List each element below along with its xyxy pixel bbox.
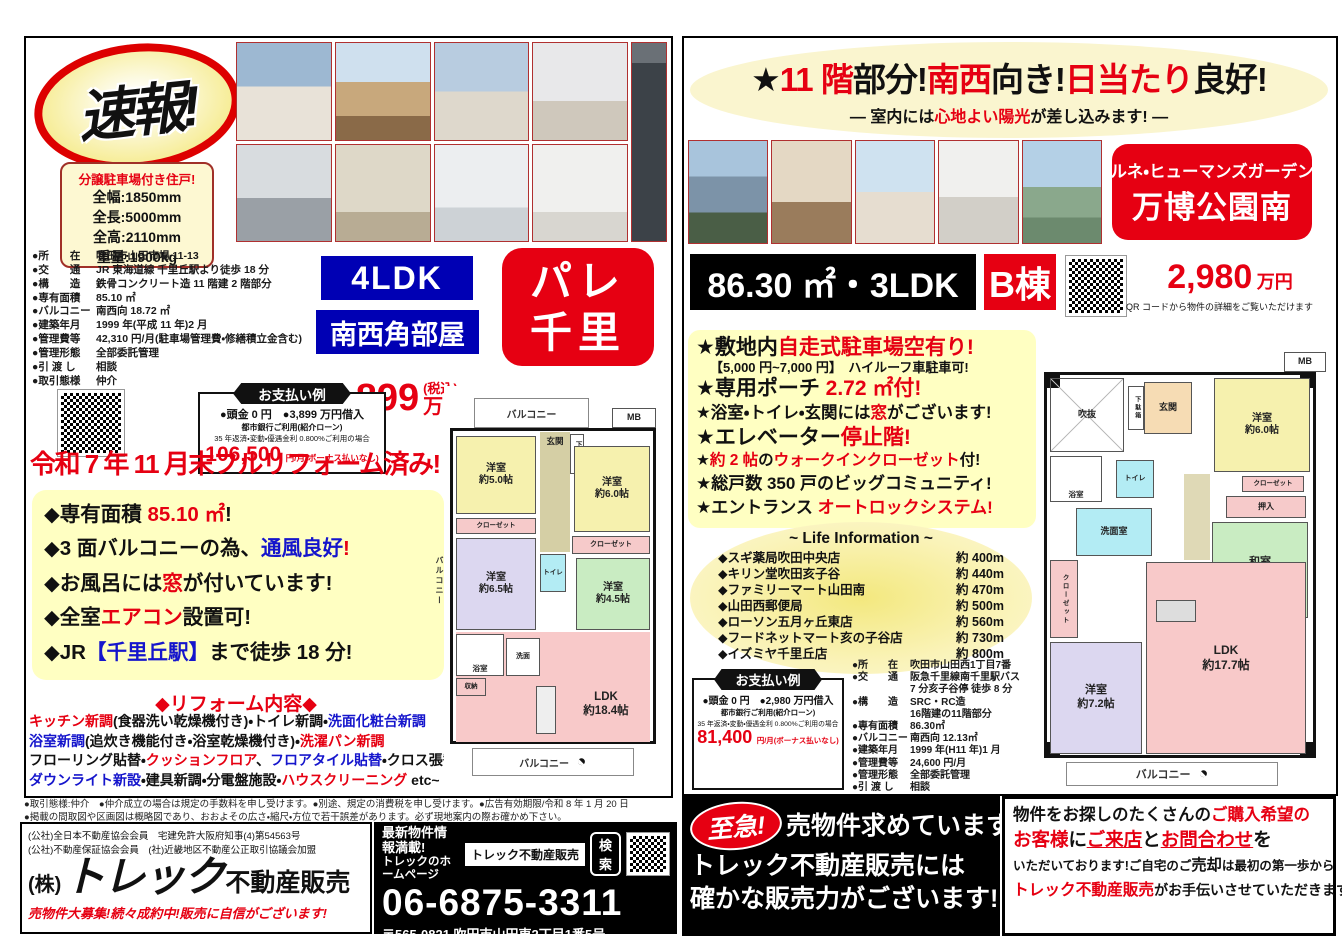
payment-title: お支払い例	[714, 669, 822, 690]
property-photo	[335, 144, 431, 243]
meter-box-label: MB	[612, 408, 656, 428]
qr-caption: QR コードから物件の詳細をご覧いただけます	[1126, 300, 1330, 313]
floor-plan: MB 吹抜 下駄箱 玄関 洋室 約6.0帖 浴室 トイレ 洗面室 クローゼット …	[1036, 350, 1332, 790]
urgent-recruiting-box: 至急! 売物件求めています! トレック不動産販売には 確かな販売力がございます!	[682, 796, 1000, 936]
life-item: ◆スギ薬局吹田中央店約 400m	[718, 550, 1004, 566]
life-item: ◆フードネットマート亥の子谷店約 730m	[718, 630, 1004, 646]
property-photo	[236, 144, 332, 243]
website-promo-line: トレックのホームページ	[382, 856, 459, 882]
urgent-badge: 至急!	[688, 798, 784, 854]
feature-item: ◆お風呂には窓が付いています!	[44, 567, 432, 601]
selling-point: ★敷地内自走式駐車場空有り!	[696, 335, 1028, 360]
selling-point: ★総戸数 350 戸のビッグコミュニティ!	[696, 472, 1028, 496]
bedroom-6-0: 洋室 約6.0帖	[574, 446, 650, 532]
property-photo	[532, 42, 628, 141]
photo-grid	[236, 42, 667, 242]
property-details-list: ●所 在吹田市山田市場 11-13 ●交 通JR 東海道線 千里丘駅より徒歩 1…	[32, 250, 338, 389]
features-box: ◆専有面積 85.10 ㎡! ◆3 面バルコニーの為、通風良好! ◆お風呂には窓…	[32, 490, 444, 680]
hallway	[1184, 474, 1210, 560]
shoe-cabinet: 下駄箱	[1128, 386, 1144, 430]
balcony-label: バルコニー ◑	[1066, 762, 1278, 786]
headline-title: ★11 階部分!南西向き!日当たり良好!	[751, 53, 1267, 101]
ldk: LDK 約17.7帖	[1146, 562, 1306, 754]
detail-row: ●構 造鉄骨コンクリート造 11 階建 2 階部分	[32, 278, 338, 292]
life-item: ◆山田西郵便局約 500m	[718, 598, 1004, 614]
left-listing-page: 速報! 分譲駐車場付き住戸! 全幅:1850mm 全長:5000mm 全高:21…	[24, 36, 673, 798]
parking-width: 全幅:1850mm	[62, 188, 212, 208]
corner-room-badge: 南西角部屋	[316, 310, 479, 354]
sales-promo-box: 物件をお探しのたくさんのご購入希望の お客様にご来店とお問合わせを いただいてお…	[1002, 796, 1336, 936]
area-layout-badge: 86.30 ㎡・3LDK	[690, 254, 976, 310]
property-photo	[532, 144, 628, 243]
detail-row: ●専有面積85.10 ㎡	[32, 292, 338, 306]
price: 2,980 万円	[1132, 258, 1328, 297]
headline-banner: ★11 階部分!南西向き!日当たり良好! ― 室内には心地よい陽光が差し込みます…	[690, 42, 1328, 138]
bedroom-5-0: 洋室 約5.0帖	[456, 436, 536, 514]
selling-point: ★約 2 帖のウォークインクローゼット付!	[696, 450, 1028, 472]
qr-code	[627, 833, 669, 875]
payment-example-box: お支払い例 ●頭金 0 円 ●2,980 万円借入 都市銀行ご利用(紹介ローン)…	[692, 678, 844, 790]
license-line: (公社)全日本不動産協会会員 宅建免許大阪府知事(4)第54563号	[28, 828, 364, 842]
detail-row: ●引 渡 し相談	[32, 361, 338, 375]
phone-number: 06-6875-3311	[382, 883, 669, 924]
floor-plan: バルコニー MB 玄関 下駄箱 洋室 約5.0帖 洋室 約6.0帖 クローゼット…	[444, 386, 666, 790]
selling-points-box: ★敷地内自走式駐車場空有り! 【5,000 円~7,000 円】 ハイルーフ車駐…	[688, 330, 1036, 528]
balcony-label: バルコニー	[474, 398, 589, 428]
detail-row: ●建築年月1999 年(平成 11 年)2 月	[32, 319, 338, 333]
price-amount: 2,980	[1167, 258, 1252, 296]
life-item: ◆ファミリーマート山田南約 470m	[718, 582, 1004, 598]
compass-icon: ◑	[572, 752, 592, 772]
washroom: 洗面	[506, 638, 540, 676]
renovation-headline: 令和 7 年 11 月末フルリフォーム済み!	[30, 444, 468, 481]
life-item: ◆ローソン五月ヶ丘東店約 560m	[718, 614, 1004, 630]
bedroom-6-0: 洋室 約6.0帖	[1214, 378, 1310, 472]
bedroom-4-5: 洋室 約4.5帖	[576, 558, 650, 630]
promo-line: いただいております!ご自宅のご売却は最初の第一歩から	[1013, 853, 1325, 879]
parking-height: 全高:2110mm	[62, 228, 212, 248]
company-name-row: (株) トレック 不動産販売	[28, 858, 364, 899]
kitchen-counter	[1156, 600, 1196, 622]
compass-icon: ◑	[1194, 764, 1214, 784]
oshiire-closet: 押入	[1226, 496, 1306, 518]
contact-box: 最新物件情報満載! トレックのホームページ トレック不動産販売 検索 06-68…	[374, 822, 677, 934]
feature-item: ◆3 面バルコニーの為、通風良好!	[44, 532, 432, 566]
legal-fine-print: ●取引態様:仲介 ●仲介成立の場合は規定の手数料を申し受けます。●別途、規定の消…	[24, 799, 672, 824]
balcony-label: バルコニー	[434, 556, 445, 606]
storage: 収納	[456, 678, 486, 696]
property-photo	[434, 42, 530, 141]
feature-item: ◆JR【千里丘駅】まで徒歩 18 分!	[44, 636, 432, 670]
payment-title: お支払い例	[233, 383, 351, 404]
detail-row: ●交 通JR 東海道線 千里丘駅より徒歩 18 分	[32, 264, 338, 278]
parking-title: 分譲駐車場付き住戸!	[62, 169, 212, 188]
selling-point: ★専用ポーチ 2.72 ㎡付!	[696, 376, 1028, 401]
detail-row: ●所 在吹田市山田市場 11-13	[32, 250, 338, 264]
meter-box-label: MB	[1284, 352, 1326, 372]
bedroom-7-2: 洋室 約7.2帖	[1050, 642, 1142, 754]
search-widget: トレック不動産販売 検索	[465, 832, 621, 876]
building-name-badge: パレ 千里	[502, 248, 654, 366]
building-name-badge: ルネ・ヒューマンズガーデン 万博公園南	[1112, 144, 1312, 240]
life-information-box: ~ Life Information ~ ◆スギ薬局吹田中央店約 400m ◆キ…	[690, 522, 1032, 674]
website-promo-line: 最新物件情報満載!	[382, 826, 459, 856]
company-address: 〒565-0821 吹田市山田東2丁目1番5号	[382, 924, 669, 943]
toilet: トイレ	[540, 554, 566, 592]
selling-point: ★浴室・トイレ・玄関には窓がございます!	[696, 402, 1028, 425]
bathroom: 浴室	[1050, 456, 1102, 502]
search-input[interactable]: トレック不動産販売	[465, 843, 585, 866]
walk-in-closet: クローゼット	[1050, 560, 1078, 638]
balcony-label: バルコニー ◑	[472, 748, 634, 776]
reform-list: キッチン新調(食器洗い乾燥機付き)・トイレ新調・洗面化粧台新調 浴室新調(追炊き…	[29, 712, 469, 790]
property-photo	[335, 42, 431, 141]
reform-item: 浴室新調(追炊き機能付き・浴室乾燥機付き)・洗濯パン新調	[29, 732, 469, 752]
flash-news-badge: 速報!	[28, 36, 246, 180]
entrance: 玄関	[1144, 382, 1192, 434]
ldk-label: LDK 約18.4帖	[562, 682, 650, 726]
reform-item: フローリング貼替・クッションフロア、フロアタイル貼替・クロス張替	[29, 751, 469, 771]
price-unit: 万円	[1257, 272, 1293, 292]
detail-row: ●管理費等42,310 円/月(駐車場管理費・修繕積立金含む)	[32, 333, 338, 347]
reform-item: ダウンライト新設・建具新調・分電盤施設・ハウスクリーニング etc~	[29, 771, 469, 791]
atrium: 吹抜	[1050, 378, 1124, 452]
flash-news-label: 速報!	[74, 61, 200, 154]
closet: クローゼット	[572, 536, 650, 554]
selling-point: ★エレベーター停止階!	[696, 425, 1028, 450]
kitchen-counter	[536, 686, 556, 734]
selling-point-sub: 【5,000 円~7,000 円】 ハイルーフ車駐車可!	[696, 360, 1028, 376]
reform-item: キッチン新調(食器洗い乾燥機付き)・トイレ新調・洗面化粧台新調	[29, 712, 469, 732]
property-photo	[631, 42, 667, 242]
headline-subtitle: ― 室内には心地よい陽光が差し込みます! ―	[850, 103, 1168, 127]
bedroom-6-5: 洋室 約6.5帖	[456, 538, 536, 630]
flyer-canvas: 速報! 分譲駐車場付き住戸! 全幅:1850mm 全長:5000mm 全高:21…	[0, 0, 1342, 949]
company-info-box: (公社)全日本不動産協会会員 宅建免許大阪府知事(4)第54563号 (公社)不…	[20, 822, 372, 934]
layout-badge: 4LDK	[321, 256, 473, 300]
company-slogan: 売物件大募集!続々成約中!販売に自信がございます!	[28, 903, 364, 922]
property-photo	[1022, 140, 1102, 244]
parking-length: 全長:5000mm	[62, 208, 212, 228]
closet: クローゼット	[456, 518, 536, 534]
life-information-title: ~ Life Information ~	[690, 530, 1032, 548]
property-photo	[434, 144, 530, 243]
qr-code	[1066, 256, 1126, 316]
detail-row: ●バルコニー南西向 18.72 ㎡	[32, 305, 338, 319]
monthly-payment: 81,400	[697, 727, 752, 747]
selling-point: ★エントランス オートロックシステム!	[696, 496, 1028, 520]
detail-row: ●管理形態全部委託管理	[32, 347, 338, 361]
bathroom: 浴室	[456, 634, 504, 676]
washroom: 洗面室	[1076, 508, 1152, 556]
promo-line: 物件をお探しのたくさんのご購入希望の	[1013, 804, 1325, 827]
company-logo-text: トレック	[63, 858, 223, 896]
closet: クローゼット	[1242, 476, 1304, 492]
photo-row	[688, 140, 1102, 244]
right-listing-page: ★11 階部分!南西向き!日当たり良好! ― 室内には心地よい陽光が差し込みます…	[682, 36, 1338, 796]
property-photo	[688, 140, 768, 244]
promo-line: トレック不動産販売がお手伝いさせていただきます!	[1013, 879, 1325, 903]
property-photo	[236, 42, 332, 141]
property-photo	[938, 140, 1018, 244]
toilet: トイレ	[1116, 460, 1154, 498]
life-item: ◆キリン堂吹田亥子谷約 440m	[718, 566, 1004, 582]
promo-line: お客様にご来店とお問合わせを	[1013, 827, 1325, 853]
property-photo	[771, 140, 851, 244]
entrance-hall: 玄関	[540, 432, 570, 552]
feature-item: ◆専有面積 85.10 ㎡!	[44, 498, 432, 532]
building-block-badge: B棟	[984, 254, 1056, 310]
feature-item: ◆全室エアコン設置可!	[44, 601, 432, 635]
property-photo	[855, 140, 935, 244]
search-button[interactable]: 検索	[590, 832, 621, 876]
